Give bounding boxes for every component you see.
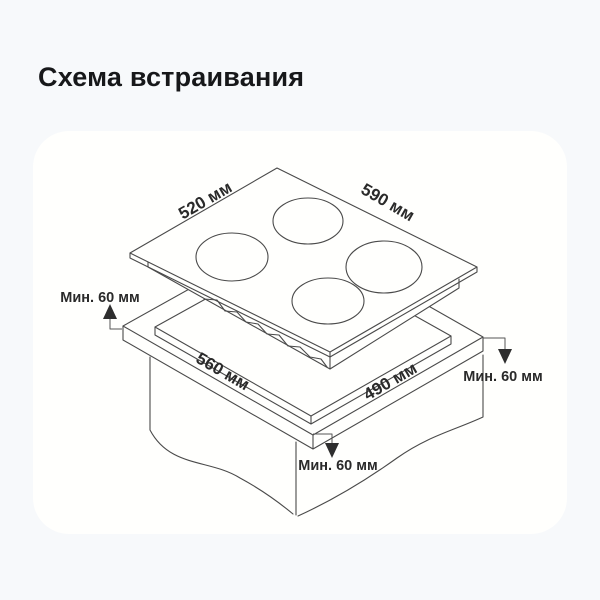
arrow-down-icon [325, 443, 339, 458]
cooktop-drawing [130, 168, 477, 369]
installation-diagram: Мин. 60 мм Мин. 60 мм Мин. 60 мм 520 мм … [0, 0, 600, 600]
clearance-right: Мин. 60 мм [463, 338, 542, 385]
clearance-bottom-label: Мин. 60 мм [298, 458, 377, 474]
cabinet-drawing [150, 355, 483, 516]
arrow-up-icon [103, 304, 117, 319]
clearance-bottom: Мин. 60 мм [298, 434, 377, 474]
cutout-right-label: 490 мм [360, 359, 420, 405]
arrow-down-icon [498, 349, 512, 364]
clearance-right-label: Мин. 60 мм [463, 369, 542, 385]
clearance-left-label: Мин. 60 мм [60, 290, 139, 306]
